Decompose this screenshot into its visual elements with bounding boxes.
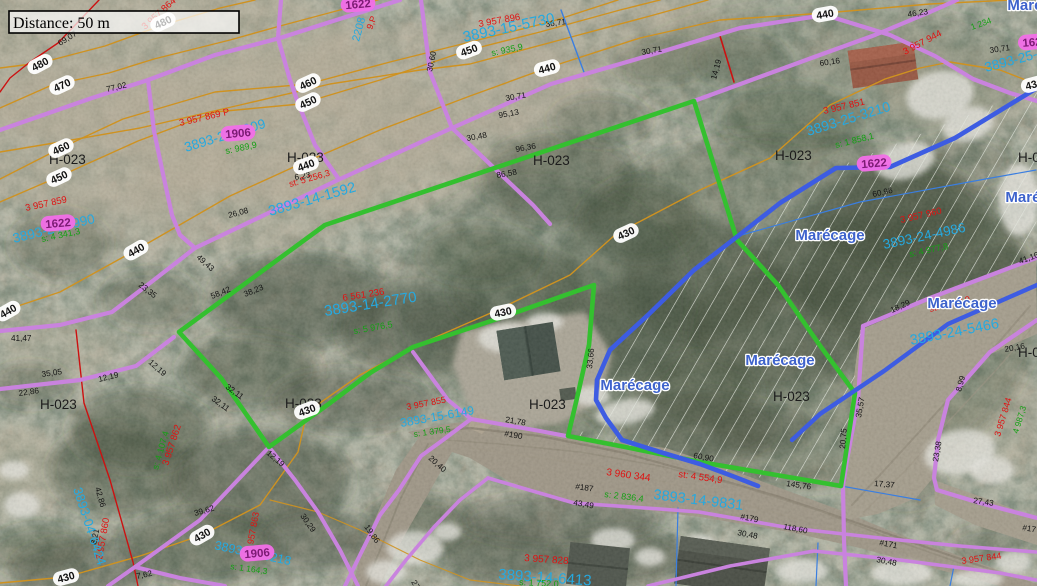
svg-text:Marécage: Marécage <box>795 227 864 244</box>
svg-text:1906: 1906 <box>225 127 252 141</box>
svg-text:41,47: 41,47 <box>11 334 32 343</box>
svg-text:H-023: H-023 <box>1018 345 1037 360</box>
svg-text:H-023: H-023 <box>533 153 570 168</box>
svg-text:1906: 1906 <box>244 547 271 561</box>
svg-text:Marécage: Marécage <box>927 295 996 312</box>
svg-text:H-023: H-023 <box>40 397 77 412</box>
svg-text:s: 1 752,0: s: 1 752,0 <box>519 577 559 586</box>
svg-text:Marécage: Marécage <box>1005 189 1037 206</box>
svg-text:Marécage: Marécage <box>745 352 814 369</box>
svg-text:H-023: H-023 <box>529 397 566 412</box>
svg-text:1622: 1622 <box>45 217 72 231</box>
svg-text:Marécage: Marécage <box>1007 0 1037 14</box>
svg-text:H-023: H-023 <box>773 389 810 404</box>
svg-text:H-023: H-023 <box>1018 150 1037 165</box>
svg-text:Distance: 50 m: Distance: 50 m <box>13 15 110 32</box>
svg-text:20,75: 20,75 <box>838 428 849 450</box>
svg-text:162: 162 <box>1022 36 1037 50</box>
svg-text:Marécage: Marécage <box>600 377 669 394</box>
svg-text:17,37: 17,37 <box>874 479 896 490</box>
svg-text:H-023: H-023 <box>775 148 812 163</box>
svg-text:1622: 1622 <box>861 157 888 171</box>
